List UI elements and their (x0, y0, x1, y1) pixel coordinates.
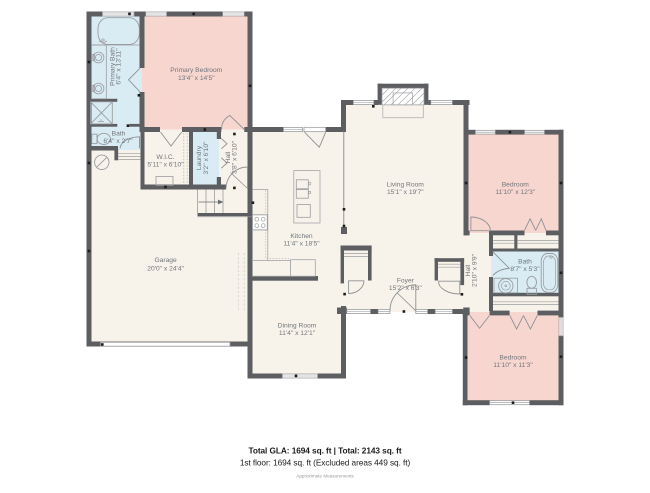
svg-text:11'4" x 18'5": 11'4" x 18'5" (283, 240, 320, 247)
svg-text:1st floor: 1694 sq. ft (Exclud: 1st floor: 1694 sq. ft (Excluded areas 4… (240, 458, 411, 468)
svg-text:6'4" x 13'11": 6'4" x 13'11" (116, 48, 123, 85)
svg-text:11'4" x 12'1": 11'4" x 12'1" (279, 330, 316, 337)
svg-text:Bath: Bath (112, 130, 126, 137)
svg-text:3'8" x 6'10": 3'8" x 6'10" (231, 140, 238, 174)
svg-text:13'4" x 14'5": 13'4" x 14'5" (178, 75, 215, 82)
svg-text:Living Room: Living Room (387, 182, 425, 189)
svg-text:Primary Bedroom: Primary Bedroom (170, 67, 222, 74)
svg-text:15'2" x 6'3": 15'2" x 6'3" (389, 285, 423, 292)
svg-text:Foyer: Foyer (397, 278, 415, 285)
svg-text:2'10" x 9'9": 2'10" x 9'9" (471, 253, 478, 287)
svg-text:6'4" x 2'7": 6'4" x 2'7" (103, 138, 133, 145)
svg-text:20'0" x 24'4": 20'0" x 24'4" (147, 266, 184, 273)
svg-text:15'1" x 19'7": 15'1" x 19'7" (387, 189, 424, 196)
svg-text:Laundry: Laundry (196, 145, 203, 170)
svg-text:Garage: Garage (154, 257, 177, 264)
svg-text:5'11" x 6'10": 5'11" x 6'10" (147, 162, 184, 169)
svg-text:Kitchen: Kitchen (290, 233, 313, 240)
svg-text:Total GLA: 1694 sq. ft | Total: Total GLA: 1694 sq. ft | Total: 2143 sq.… (248, 446, 401, 456)
svg-text:8'7" x 5'3": 8'7" x 5'3" (510, 266, 540, 273)
svg-text:Dining Room: Dining Room (278, 323, 317, 330)
svg-text:Bedroom: Bedroom (499, 355, 527, 362)
svg-text:11'10" x 11'3": 11'10" x 11'3" (493, 362, 533, 369)
svg-text:Approximate Measurements: Approximate Measurements (296, 474, 354, 479)
svg-text:Bath: Bath (518, 258, 532, 265)
svg-text:W.I.C.: W.I.C. (156, 154, 174, 161)
svg-text:Bedroom: Bedroom (502, 182, 530, 189)
svg-text:11'10" x 12'3": 11'10" x 12'3" (495, 189, 536, 196)
svg-text:3'2" x 6'10": 3'2" x 6'10" (203, 141, 210, 175)
